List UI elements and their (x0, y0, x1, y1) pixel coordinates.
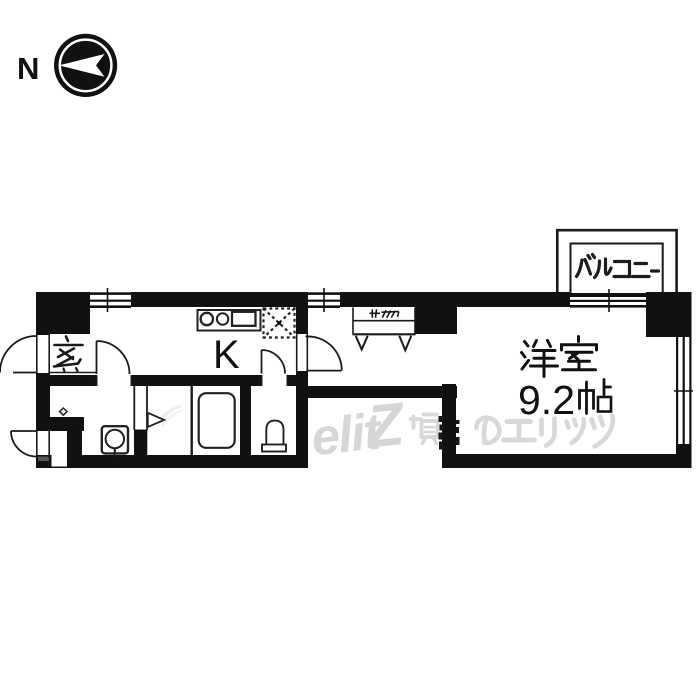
svg-text:N: N (17, 51, 39, 86)
svg-text:K: K (213, 333, 240, 377)
svg-text:9.2: 9.2 (518, 377, 575, 423)
